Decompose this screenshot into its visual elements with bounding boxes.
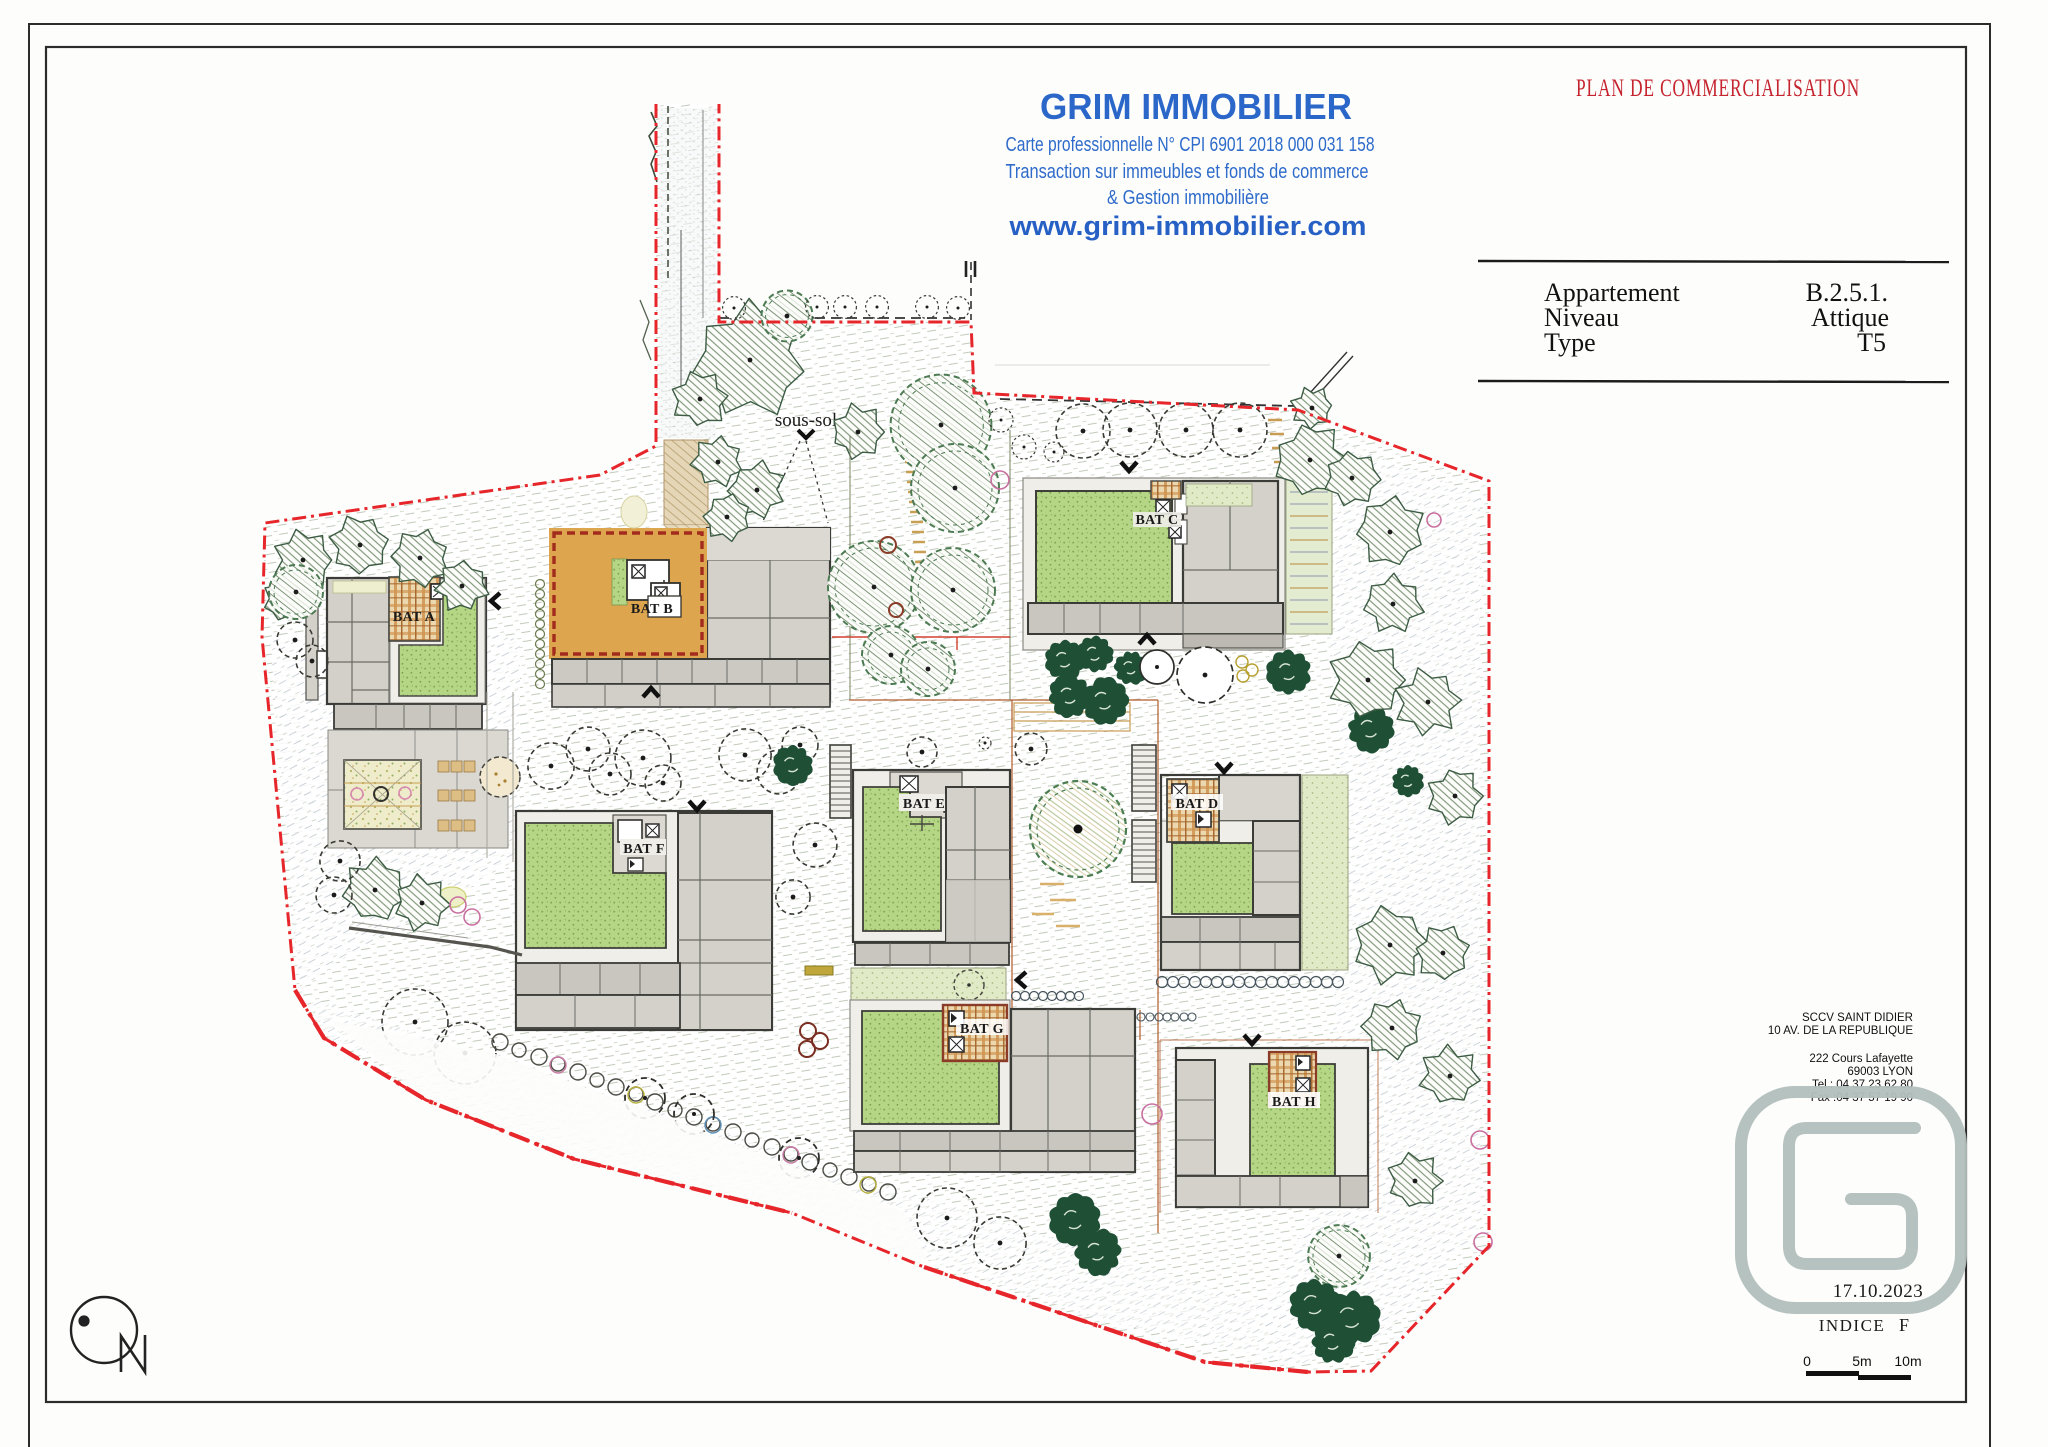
svg-text:69003 LYON: 69003 LYON xyxy=(1847,1066,1913,1078)
svg-text:F: F xyxy=(1899,1315,1909,1335)
svg-text:Type: Type xyxy=(1544,328,1596,357)
svg-text:BAT F: BAT F xyxy=(623,842,665,857)
svg-text:17.10.2023: 17.10.2023 xyxy=(1833,1281,1924,1302)
svg-text:BAT D: BAT D xyxy=(1175,797,1218,812)
svg-text:& Gestion immobilière: & Gestion immobilière xyxy=(1107,187,1269,209)
svg-text:222 Cours Lafayette: 222 Cours Lafayette xyxy=(1809,1053,1913,1065)
svg-text:BAT H: BAT H xyxy=(1272,1095,1316,1110)
svg-text:BAT C: BAT C xyxy=(1135,513,1178,528)
svg-text:INDICE: INDICE xyxy=(1819,1316,1886,1335)
svg-text:10 AV. DE LA REPUBLIQUE: 10 AV. DE LA REPUBLIQUE xyxy=(1768,1025,1913,1037)
svg-text:Transaction sur immeubles et f: Transaction sur immeubles et fonds de co… xyxy=(1006,161,1369,183)
svg-text:10m: 10m xyxy=(1894,1353,1921,1369)
svg-text:BAT B: BAT B xyxy=(631,602,673,617)
svg-text:BAT E: BAT E xyxy=(903,797,945,812)
svg-text:5m: 5m xyxy=(1852,1353,1871,1369)
svg-text:www.grim-immobilier.com: www.grim-immobilier.com xyxy=(1008,211,1366,241)
svg-text:GRIM IMMOBILIER: GRIM IMMOBILIER xyxy=(1040,86,1352,127)
svg-text:sous-sol: sous-sol xyxy=(775,410,837,431)
svg-text:Carte professionnelle N° CPI 6: Carte professionnelle N° CPI 6901 2018 0… xyxy=(1006,134,1375,156)
svg-text:SCCV SAINT DIDIER: SCCV SAINT DIDIER xyxy=(1802,1012,1913,1024)
svg-text:BAT G: BAT G xyxy=(960,1022,1004,1037)
svg-text:0: 0 xyxy=(1803,1353,1811,1369)
svg-text:BAT A: BAT A xyxy=(393,610,436,625)
svg-text:PLAN DE COMMERCIALISATION: PLAN DE COMMERCIALISATION xyxy=(1576,75,1860,102)
svg-text:T5: T5 xyxy=(1857,328,1886,357)
